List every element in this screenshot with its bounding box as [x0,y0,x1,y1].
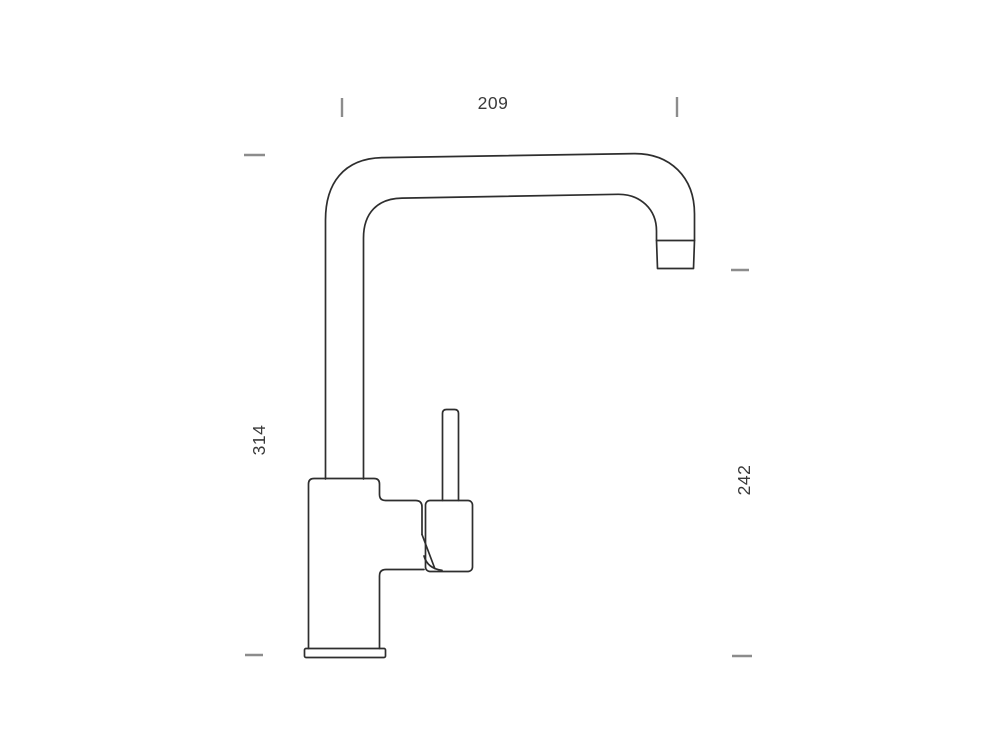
dimension-label-outlet-height: 242 [734,465,754,496]
faucet-body [309,479,423,649]
dimension-label-spout-reach: 209 [478,93,509,113]
base-flange [305,649,386,658]
spout-aerator [657,241,695,269]
spout-inner-contour [364,194,657,479]
body-underside-step [380,570,425,649]
dimension-ticks [244,97,752,656]
technical-drawing-canvas: 209 314 242 [0,0,1000,750]
dimension-label-overall-height: 314 [249,425,269,456]
faucet-outline [305,154,695,658]
faucet-dimension-drawing: 209 314 242 [0,0,1000,750]
handle-rod [443,410,459,501]
